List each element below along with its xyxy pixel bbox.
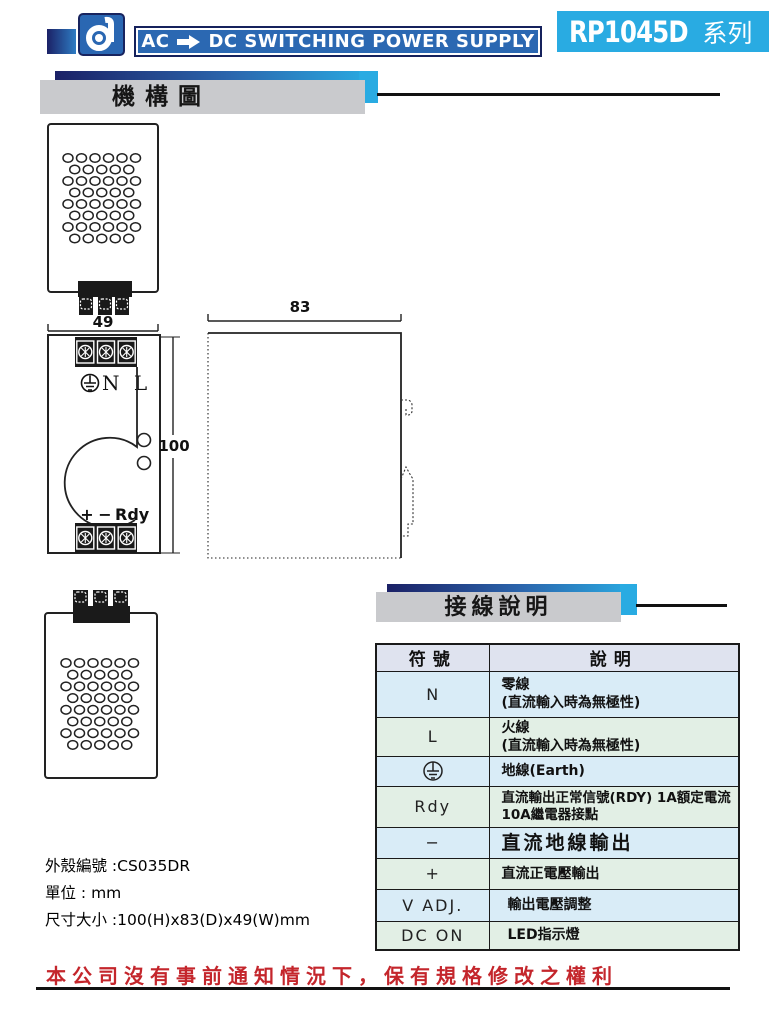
table-row-plus: + 直流正電壓輸出 bbox=[376, 858, 739, 889]
symbol-cell: Rdy bbox=[376, 786, 489, 827]
case-number-note: 外殼編號 :CS035DR bbox=[45, 853, 310, 880]
header-accent-square bbox=[47, 29, 76, 54]
banner-suffix: DC SWITCHING POWER SUPPLY bbox=[208, 31, 534, 52]
dc-minus-label: − bbox=[98, 505, 111, 524]
table-row-dcon: DC ON LED指示燈 bbox=[376, 921, 739, 950]
symbol-cell: − bbox=[376, 827, 489, 858]
description-line1: 直流輸出正常信號(RDY) 1A額定電流 bbox=[502, 790, 739, 807]
description-cell: 輸出電壓調整 bbox=[489, 889, 739, 921]
description-line2: 10A繼電器接點 bbox=[502, 807, 739, 824]
mechanism-header-rule bbox=[377, 93, 720, 96]
terminal-block-top-view bbox=[78, 281, 132, 315]
bottom-view-drawing bbox=[40, 583, 170, 788]
description-line1: 零線 bbox=[502, 676, 739, 694]
wiring-section-title: 接線說明 bbox=[376, 592, 621, 622]
table-row-earth: 地線(Earth) bbox=[376, 756, 739, 786]
disclaimer-text: 本公司沒有事前通知情況下，保有規格修改之權利 bbox=[46, 960, 618, 989]
table-header-row: 符號 說明 bbox=[376, 644, 739, 671]
series-suffix: 系列 bbox=[702, 14, 752, 50]
dimension-width: 49 bbox=[48, 313, 158, 331]
symbol-column-header: 符號 bbox=[376, 644, 489, 671]
symbol-cell bbox=[376, 756, 489, 786]
unit-note: 單位 : mm bbox=[45, 880, 310, 907]
brand-d-icon bbox=[80, 15, 123, 54]
table-row-vadj: V ADJ. 輸出電壓調整 bbox=[376, 889, 739, 921]
width-dim-label: 49 bbox=[93, 313, 114, 331]
side-view-drawing: 83 bbox=[200, 288, 425, 568]
description-cell: 直流地線輸出 bbox=[489, 827, 739, 858]
description-column-header: 說明 bbox=[489, 644, 739, 671]
symbol-cell: L bbox=[376, 717, 489, 756]
series-badge: RP1045D 系列 bbox=[557, 11, 769, 52]
wiring-header-rule bbox=[636, 604, 727, 607]
symbol-cell: DC ON bbox=[376, 921, 489, 950]
dc-plus-label: + bbox=[80, 505, 93, 524]
wiring-header-corner bbox=[620, 584, 637, 615]
size-note: 尺寸大小 :100(H)x83(D)x49(W)mm bbox=[45, 907, 310, 934]
datasheet-page: AC DC SWITCHING POWER SUPPLY RP1045D 系列 … bbox=[0, 0, 769, 1010]
height-dim-label: 100 bbox=[158, 437, 189, 455]
bottom-view-case bbox=[45, 613, 157, 778]
description-cell: 地線(Earth) bbox=[489, 756, 739, 786]
footer-rule bbox=[36, 987, 730, 990]
symbol-cell: + bbox=[376, 858, 489, 889]
front-view-drawing: N L + − Rdy 100 bbox=[40, 330, 205, 565]
wiring-table: 符號 說明 N 零線 (直流輸入時為無極性) L 火線 (直流輸入時為無極性) bbox=[375, 643, 740, 951]
side-view-case bbox=[208, 333, 401, 558]
top-view-drawing: 49 bbox=[45, 120, 170, 335]
description-line2: (直流輸入時為無極性) bbox=[502, 737, 739, 755]
terminal-block-output bbox=[75, 523, 137, 553]
dimension-depth: 83 bbox=[208, 298, 401, 321]
table-row-l: L 火線 (直流輸入時為無極性) bbox=[376, 717, 739, 756]
series-model: RP1045D bbox=[569, 15, 688, 49]
din-rail-clip-upper bbox=[401, 400, 412, 415]
right-arrow-icon bbox=[177, 34, 200, 50]
description-cell: 直流輸出正常信號(RDY) 1A額定電流 10A繼電器接點 bbox=[489, 786, 739, 827]
description-cell: LED指示燈 bbox=[489, 921, 739, 950]
terminal-block-bottom-view bbox=[73, 590, 130, 623]
table-row-minus: − 直流地線輸出 bbox=[376, 827, 739, 858]
description-cell: 零線 (直流輸入時為無極性) bbox=[489, 671, 739, 717]
input-terminal-labels: N L bbox=[102, 371, 151, 395]
description-line2: (直流輸入時為無極性) bbox=[502, 694, 739, 712]
description-cell: 直流正電壓輸出 bbox=[489, 858, 739, 889]
description-line1: 火線 bbox=[502, 719, 739, 737]
description-cell: 火線 (直流輸入時為無極性) bbox=[489, 717, 739, 756]
banner-prefix: AC bbox=[141, 31, 169, 52]
depth-dim-label: 83 bbox=[290, 298, 311, 316]
mechanism-header-gradient-bar bbox=[55, 71, 373, 80]
brand-logo bbox=[78, 13, 125, 56]
din-rail-clip-lower bbox=[401, 467, 413, 536]
symbol-cell: V ADJ. bbox=[376, 889, 489, 921]
product-banner: AC DC SWITCHING POWER SUPPLY bbox=[134, 26, 542, 57]
symbol-cell: N bbox=[376, 671, 489, 717]
dc-rdy-label: Rdy bbox=[115, 505, 150, 524]
mechanism-section-title: 機構圖 bbox=[40, 80, 365, 114]
table-row-rdy: Rdy 直流輸出正常信號(RDY) 1A額定電流 10A繼電器接點 bbox=[376, 786, 739, 827]
table-row-n: N 零線 (直流輸入時為無極性) bbox=[376, 671, 739, 717]
case-notes: 外殼編號 :CS035DR 單位 : mm 尺寸大小 :100(H)x83(D)… bbox=[45, 853, 310, 934]
terminal-block-input bbox=[75, 337, 137, 367]
dimension-height: 100 bbox=[158, 337, 189, 553]
earth-ground-icon bbox=[422, 760, 444, 782]
